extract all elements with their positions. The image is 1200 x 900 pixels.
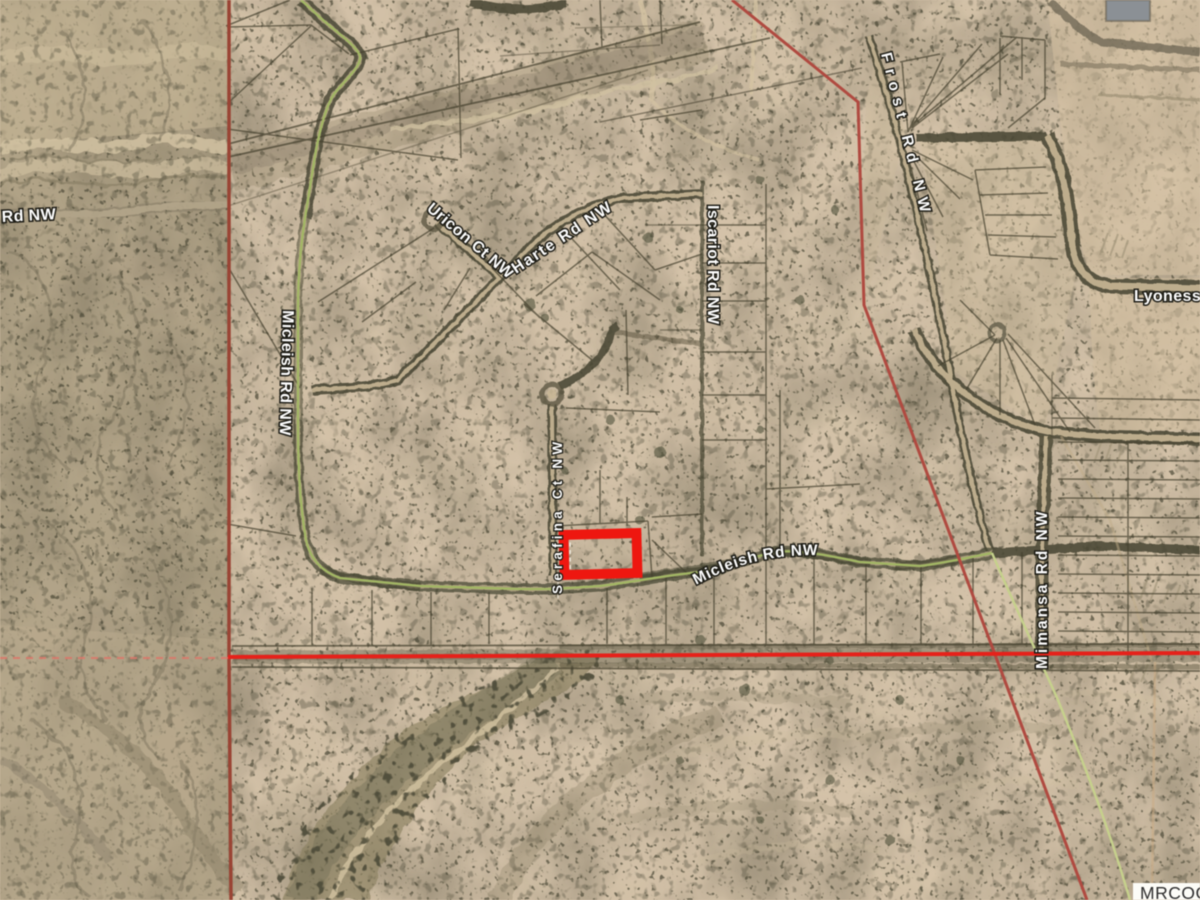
svg-text:MRCOG: MRCOG: [1140, 883, 1200, 900]
svg-text:Serafina Ct NW: Serafina Ct NW: [550, 438, 565, 594]
svg-text:Iscariot Rd NW: Iscariot Rd NW: [704, 205, 721, 325]
svg-text:Mimansa Rd NW: Mimansa Rd NW: [1034, 509, 1051, 669]
svg-text:Lyonesse: Lyonesse: [1134, 288, 1200, 305]
svg-text:Micleish Rd NW: Micleish Rd NW: [276, 310, 296, 437]
svg-text:Rd NW: Rd NW: [1, 206, 57, 226]
